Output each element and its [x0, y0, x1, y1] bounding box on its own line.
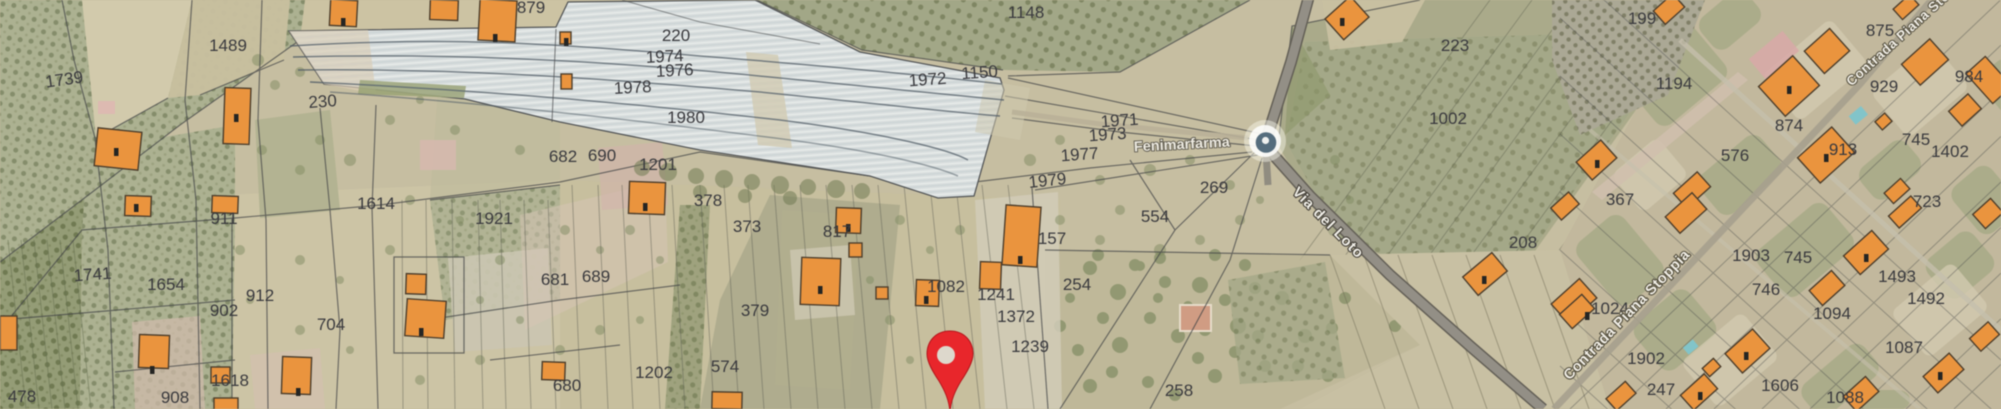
- svg-text:1002: 1002: [1429, 109, 1467, 128]
- svg-text:208: 208: [1509, 233, 1537, 252]
- svg-text:378: 378: [694, 191, 722, 210]
- svg-text:902: 902: [210, 301, 238, 320]
- svg-text:157: 157: [1038, 229, 1066, 248]
- svg-text:1148: 1148: [1008, 3, 1045, 22]
- svg-text:929: 929: [1870, 77, 1898, 96]
- svg-text:690: 690: [588, 146, 616, 165]
- svg-text:723: 723: [1913, 192, 1941, 211]
- svg-text:379: 379: [741, 301, 769, 320]
- svg-text:478: 478: [8, 387, 36, 406]
- svg-text:373: 373: [733, 217, 761, 236]
- svg-text:1654: 1654: [147, 275, 185, 294]
- svg-text:1194: 1194: [1656, 74, 1693, 93]
- svg-text:230: 230: [308, 91, 338, 112]
- svg-text:682: 682: [549, 147, 577, 166]
- svg-text:681: 681: [541, 270, 569, 289]
- svg-text:913: 913: [1829, 140, 1857, 159]
- svg-text:254: 254: [1063, 275, 1091, 294]
- svg-text:908: 908: [161, 388, 189, 407]
- svg-text:1372: 1372: [997, 307, 1035, 326]
- svg-text:1614: 1614: [357, 194, 395, 213]
- svg-text:1976: 1976: [655, 60, 694, 81]
- svg-text:912: 912: [246, 286, 274, 305]
- svg-text:1088: 1088: [1826, 388, 1864, 407]
- svg-text:1492: 1492: [1907, 289, 1945, 308]
- svg-text:817: 817: [823, 222, 851, 241]
- svg-text:1489: 1489: [209, 36, 247, 55]
- svg-text:1921: 1921: [475, 209, 513, 228]
- svg-text:984: 984: [1955, 67, 1983, 86]
- svg-text:689: 689: [582, 267, 610, 286]
- svg-text:1973: 1973: [1088, 124, 1127, 146]
- svg-text:1741: 1741: [73, 264, 112, 286]
- svg-text:258: 258: [1165, 381, 1193, 400]
- svg-text:879: 879: [517, 0, 545, 17]
- svg-text:367: 367: [1606, 190, 1634, 209]
- svg-text:911: 911: [210, 209, 237, 228]
- svg-text:1903: 1903: [1732, 246, 1770, 265]
- svg-text:1202: 1202: [635, 363, 673, 382]
- svg-text:220: 220: [662, 26, 690, 45]
- svg-text:874: 874: [1775, 116, 1803, 135]
- svg-text:745: 745: [1902, 130, 1930, 149]
- svg-text:1978: 1978: [613, 77, 652, 98]
- svg-text:1493: 1493: [1878, 267, 1916, 286]
- svg-text:1082: 1082: [927, 277, 965, 296]
- svg-text:1239: 1239: [1011, 337, 1049, 356]
- svg-text:1402: 1402: [1931, 142, 1969, 161]
- svg-text:247: 247: [1647, 380, 1675, 399]
- svg-text:704: 704: [317, 315, 345, 334]
- svg-text:1977: 1977: [1060, 144, 1099, 166]
- svg-text:269: 269: [1200, 178, 1228, 197]
- svg-text:1606: 1606: [1761, 376, 1799, 395]
- svg-text:576: 576: [1721, 146, 1749, 165]
- svg-text:554: 554: [1141, 207, 1169, 226]
- svg-text:745: 745: [1784, 248, 1812, 267]
- svg-text:680: 680: [553, 376, 581, 395]
- svg-text:1241: 1241: [977, 285, 1015, 304]
- svg-text:1980: 1980: [667, 108, 705, 127]
- svg-text:199: 199: [1628, 9, 1656, 28]
- svg-text:1150: 1150: [961, 62, 999, 84]
- svg-text:574: 574: [711, 357, 739, 376]
- svg-text:1979: 1979: [1028, 169, 1068, 192]
- svg-text:1972: 1972: [908, 69, 947, 91]
- svg-text:1902: 1902: [1627, 349, 1665, 368]
- svg-text:1087: 1087: [1885, 338, 1923, 357]
- svg-text:223: 223: [1441, 36, 1469, 55]
- svg-text:1618: 1618: [211, 371, 249, 390]
- svg-text:746: 746: [1752, 280, 1780, 299]
- svg-text:1201: 1201: [639, 155, 677, 174]
- svg-text:1094: 1094: [1813, 304, 1851, 323]
